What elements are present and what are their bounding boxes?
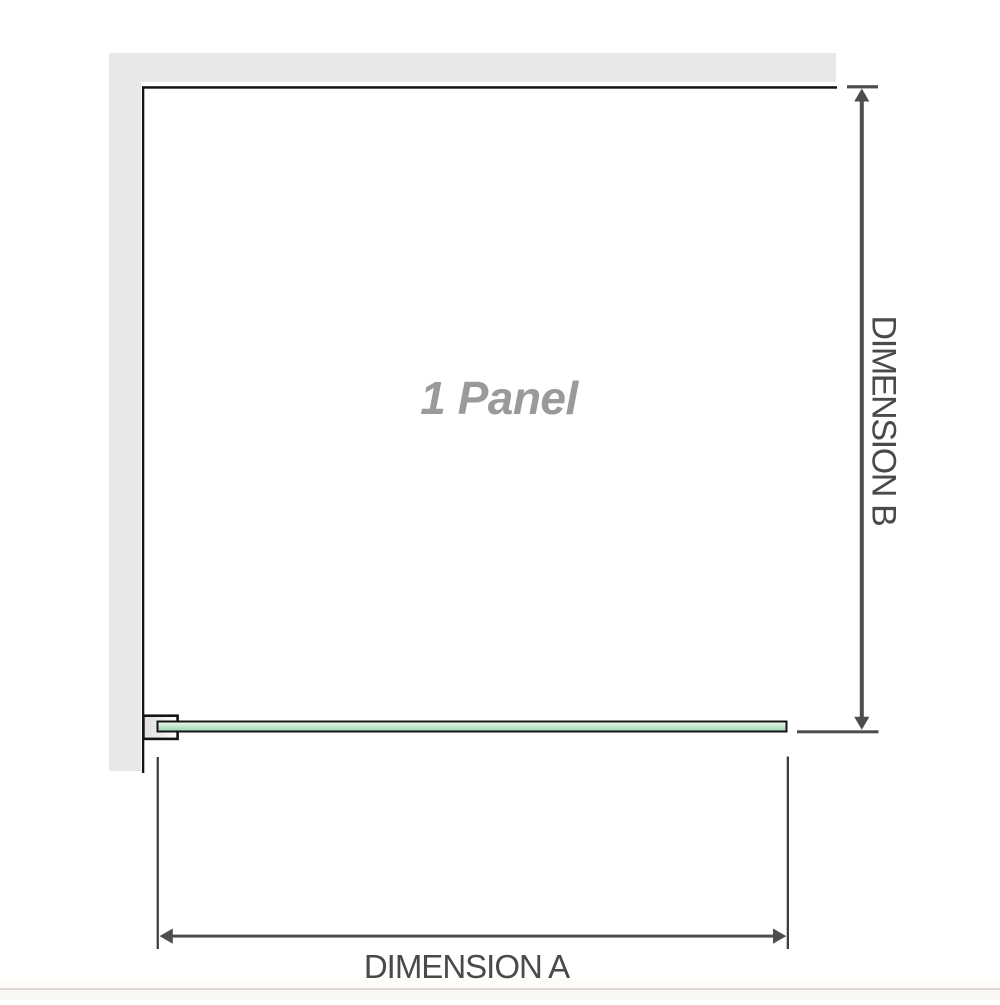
svg-text:DIMENSION B: DIMENSION B [864, 316, 902, 526]
svg-text:1 Panel: 1 Panel [420, 372, 579, 424]
